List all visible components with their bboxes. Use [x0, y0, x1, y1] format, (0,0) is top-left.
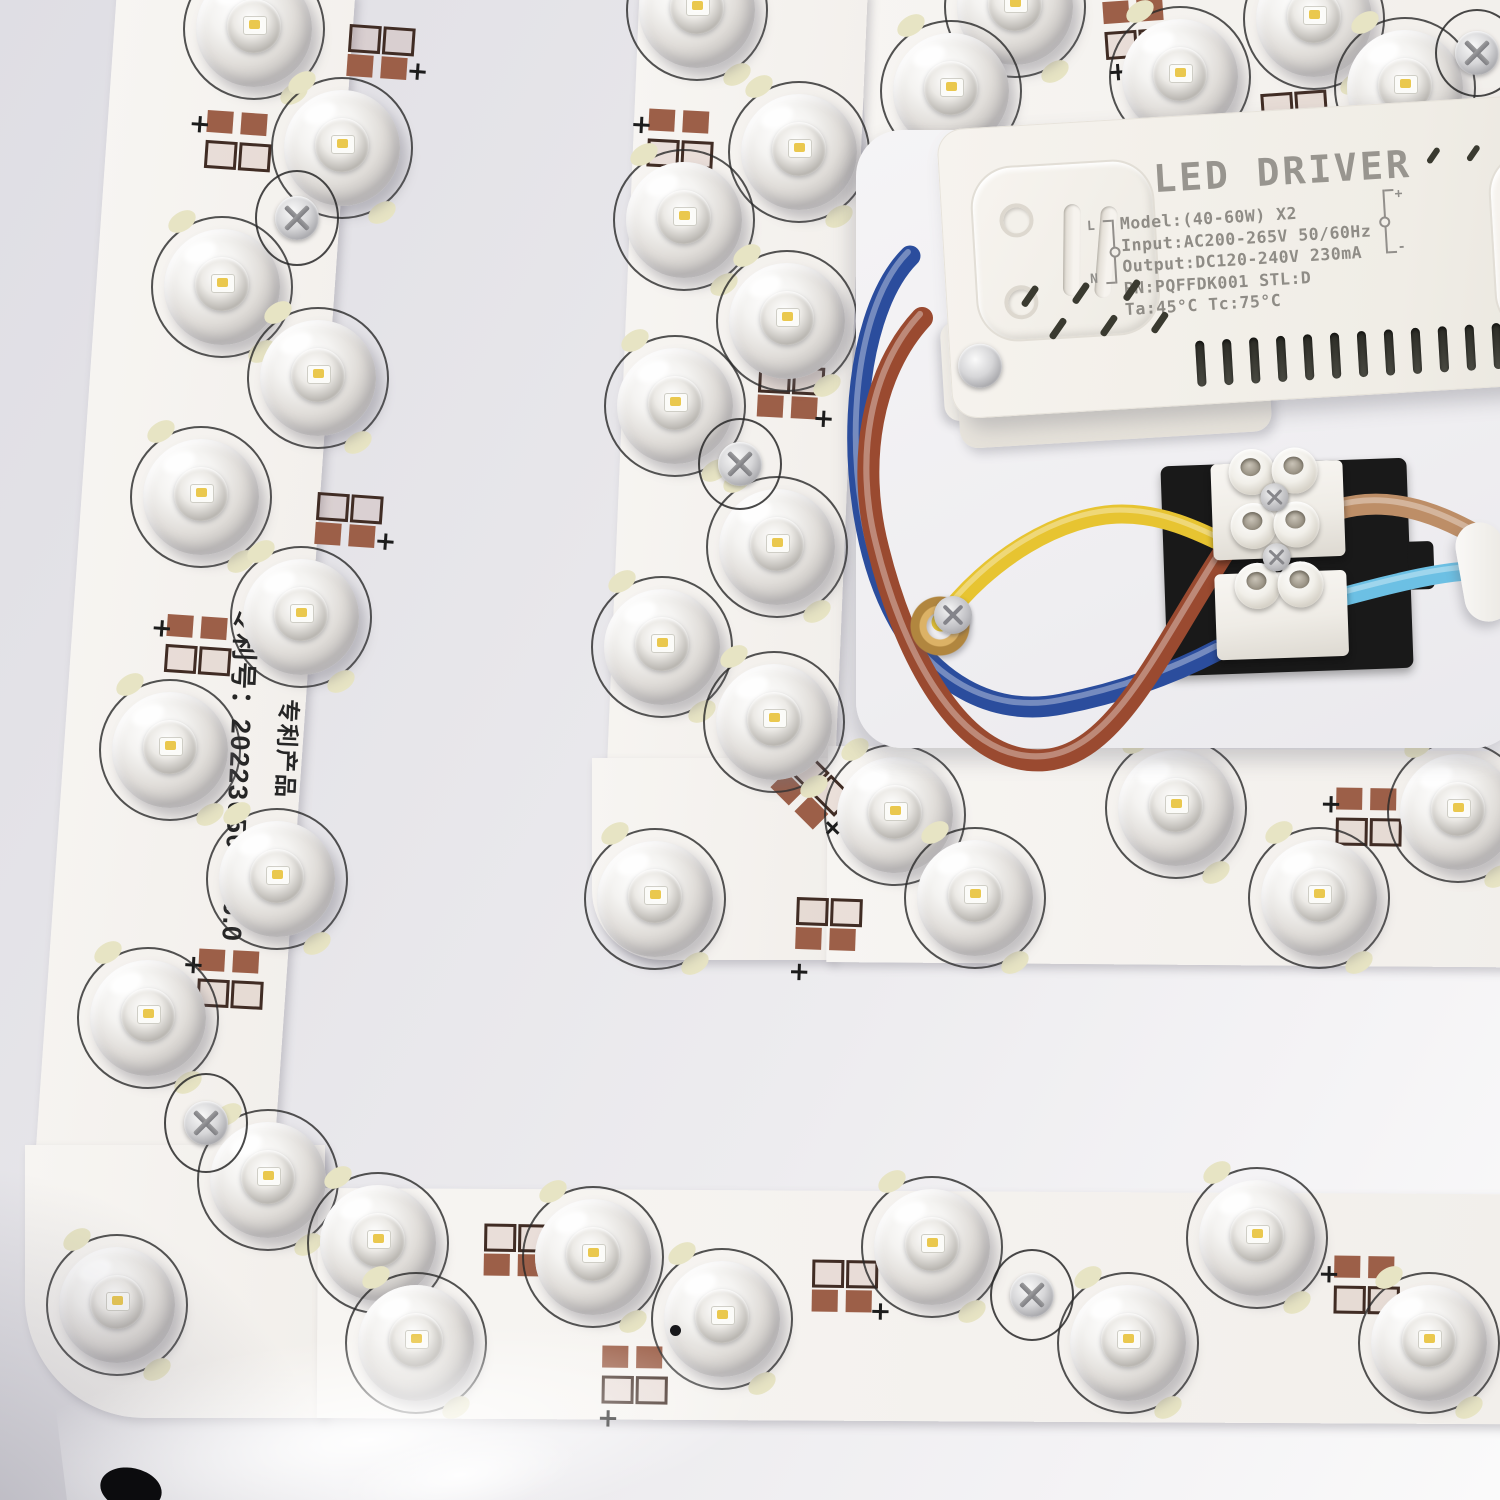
driver-vent-slashes [1046, 318, 1172, 332]
phosphor-dot [196, 488, 207, 497]
phosphor-dot [657, 638, 668, 647]
phosphor-dot [337, 139, 348, 148]
phosphor-dot [217, 278, 228, 287]
phosphor-dot [670, 397, 681, 406]
led-module [1354, 1268, 1500, 1418]
solder-pads: + [164, 614, 232, 674]
phosphor-dot [249, 20, 260, 29]
copper-pad [682, 110, 709, 133]
polarity-plus-mark: + [188, 111, 212, 138]
vent-slot [1384, 329, 1396, 375]
led-module [1182, 1163, 1332, 1313]
polarity-plus-mark: + [597, 1405, 619, 1431]
led-driver-box: LED DRIVER Model:(40-60W) X2Input:AC200-… [936, 92, 1500, 459]
mounting-screw [990, 1249, 1074, 1341]
vent-slot [1438, 326, 1450, 372]
terminal-l-label: L [1087, 219, 1096, 234]
plus-minus-terminal-glyph: + - [1380, 184, 1416, 258]
copper-pad [757, 394, 784, 417]
solder-pads: + [795, 897, 861, 955]
ground-screw [934, 596, 972, 634]
terminal-block [1154, 448, 1412, 687]
phosphor-dot [1400, 79, 1411, 88]
patent-product-text: 专利产品 [270, 699, 308, 800]
mounting-screw [255, 170, 339, 266]
phosphor-dot [1424, 1334, 1435, 1343]
ceiling-light-internals-photo: 专利号：202230506086.0 专利产品 LED DRIVER Model… [0, 0, 1500, 1500]
led-module [42, 1230, 192, 1380]
phosphor-dot [411, 1334, 422, 1343]
phosphor-dot [1309, 10, 1320, 19]
copper-pad [795, 927, 822, 950]
polarity-plus-mark: + [788, 959, 811, 986]
vent-slot [1276, 336, 1288, 382]
polarity-plus-mark: + [150, 615, 174, 642]
led-module [202, 804, 352, 954]
terminal-minus-label: - [1397, 239, 1406, 254]
copper-pad [602, 1345, 628, 1367]
copper-pad [829, 928, 856, 951]
phosphor-dot [927, 1238, 938, 1247]
led-module [580, 824, 730, 974]
phosphor-dot [263, 1171, 274, 1180]
driver-vent-slots [1195, 320, 1500, 387]
phosphor-dot [165, 741, 176, 750]
pad-outline [484, 1223, 516, 1252]
phosphor-dot [650, 890, 661, 899]
copper-pad [200, 616, 227, 640]
phosphor-dot [143, 1009, 154, 1018]
phosphor-dot [1453, 803, 1464, 812]
vent-slot [1303, 334, 1315, 380]
phosphor-dot [782, 312, 793, 321]
pad-outline [316, 492, 350, 522]
pan-gloss-highlight [324, 1408, 596, 1500]
phosphor-dot [794, 143, 805, 152]
vent-slot [1330, 332, 1342, 378]
copper-pad [240, 112, 267, 136]
phosphor-dot [772, 538, 783, 547]
phosphor-dot [769, 713, 780, 722]
vent-slot [1195, 340, 1207, 386]
driver-body: LED DRIVER Model:(40-60W) X2Input:AC200-… [936, 92, 1500, 419]
pad-outline [830, 898, 863, 927]
phosphor-dot [679, 211, 690, 220]
terminal-n-label: N [1090, 272, 1099, 287]
mounting-hole [96, 1462, 165, 1500]
pad-outline [350, 494, 384, 524]
led-module [622, 0, 772, 85]
mounting-screw [698, 418, 782, 510]
phosphor-dot [1171, 799, 1182, 808]
driver-title: LED DRIVER [1152, 142, 1413, 201]
phosphor-dot [296, 608, 307, 617]
vent-slot [1222, 339, 1234, 385]
printed-dot [670, 1325, 681, 1336]
copper-pad [812, 1289, 838, 1311]
phosphor-dot [946, 82, 957, 91]
phosphor-dot [313, 369, 324, 378]
led-module [1053, 1268, 1203, 1418]
phosphor-dot [373, 1234, 384, 1243]
vent-slash [1466, 144, 1481, 162]
solder-pads: + [204, 110, 272, 170]
led-module [73, 943, 223, 1093]
polarity-plus-mark: + [374, 528, 398, 555]
vent-slot [1411, 328, 1423, 374]
relief-hole-icon [999, 202, 1035, 238]
vent-slash [1426, 146, 1441, 164]
phosphor-dot [692, 1, 703, 10]
driver-vent-slashes-top [1424, 147, 1500, 159]
mounting-screw [1435, 9, 1500, 97]
phosphor-dot [890, 806, 901, 815]
terminal-base-ear [1407, 541, 1435, 590]
polarity-plus-mark: + [812, 405, 835, 432]
pad-outline [382, 26, 416, 56]
led-module [647, 1244, 797, 1394]
led-module [1244, 823, 1394, 973]
polarity-plus-mark: + [630, 112, 653, 139]
phosphor-dot [717, 1310, 728, 1319]
led-module [226, 542, 376, 692]
led-module [900, 823, 1050, 973]
pad-outline [230, 980, 263, 1010]
led-module [857, 1172, 1007, 1322]
phosphor-dot [970, 889, 981, 898]
phosphor-dot [112, 1296, 123, 1305]
led-module [95, 675, 245, 825]
phosphor-dot [1010, 0, 1021, 7]
led-module [1383, 737, 1500, 887]
terminal-plus-label: + [1394, 186, 1403, 201]
pad-outline [204, 140, 238, 170]
driver-strain-relief-right [1486, 142, 1500, 337]
led-module [518, 1182, 668, 1332]
pad-outline [796, 897, 829, 926]
terminal-dot-icon [1379, 216, 1391, 228]
pad-outline [164, 644, 198, 674]
phosphor-dot [1314, 889, 1325, 898]
vent-slot [1249, 337, 1261, 383]
vent-slot [1491, 323, 1500, 369]
phosphor-dot [1175, 68, 1186, 77]
driver-spec-lines: Model:(40-60W) X2Input:AC200-265V 50/60H… [1119, 198, 1375, 320]
relief-slot [1063, 204, 1081, 296]
phosphor-dot [588, 1248, 599, 1257]
phosphor-dot [272, 870, 283, 879]
pad-outline [348, 24, 382, 54]
phosphor-dot [1123, 1334, 1134, 1343]
led-module [1101, 733, 1251, 883]
led-module [341, 1268, 491, 1418]
mounting-screw [164, 1073, 248, 1173]
driver-vent-slashes [1018, 286, 1144, 300]
polarity-plus-mark: + [1320, 791, 1342, 817]
vent-slot [1357, 331, 1369, 377]
phosphor-dot [1252, 1229, 1263, 1238]
pad-outline [601, 1375, 633, 1404]
vent-slot [1464, 324, 1476, 370]
ln-terminal-glyph: L N [1083, 216, 1119, 290]
pad-outline [812, 1259, 844, 1288]
